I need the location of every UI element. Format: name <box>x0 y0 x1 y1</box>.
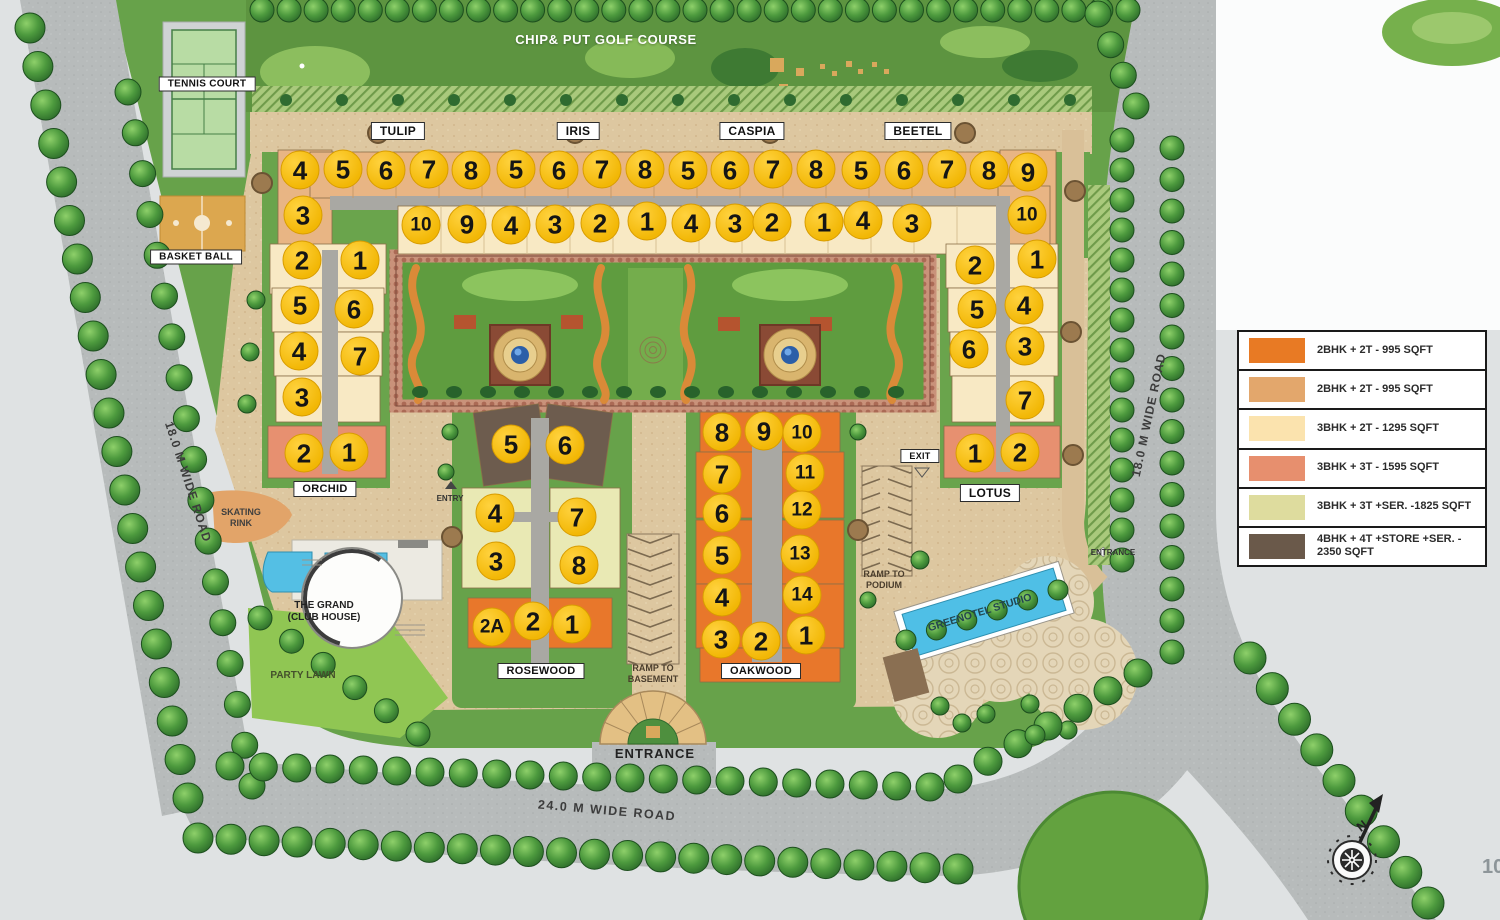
tower-badge-rosewood-4: 4 <box>476 494 515 533</box>
central-garden <box>396 256 930 406</box>
ramp-to-basement <box>627 534 679 664</box>
tower-badge-orchid-3: 3 <box>283 378 322 417</box>
area-label-exit: EXIT <box>900 449 939 463</box>
tower-badge-lotus-7: 7 <box>1006 381 1045 420</box>
legend-label: 2BHK + 2T - 995 SQFT <box>1317 383 1439 397</box>
legend-row: 2BHK + 2T - 995 SQFT <box>1239 371 1485 410</box>
ramp-basement-label: RAMP TO BASEMENT <box>628 663 679 685</box>
tower-badge-oakwood-8: 8 <box>703 413 742 452</box>
area-label-tulip: TULIP <box>371 122 425 140</box>
tower-badge-rosewood-2: 2 <box>514 602 553 641</box>
legend-swatch <box>1249 456 1305 481</box>
tower-badge-second_row-1: 1 <box>628 202 667 241</box>
tower-badge-top_row-8: 8 <box>626 150 665 189</box>
tower-badge-oakwood-5: 5 <box>703 536 742 575</box>
tower-badge-oakwood-9: 9 <box>745 412 784 451</box>
tower-badge-lotus-1: 1 <box>1018 240 1057 279</box>
tower-badge-second_row-2: 2 <box>581 204 620 243</box>
tower-badge-oakwood-2: 2 <box>742 622 781 661</box>
legend-label: 3BHK + 3T - 1595 SQFT <box>1317 461 1445 475</box>
tower-badge-second_row-4: 4 <box>844 201 883 240</box>
tower-badge-oakwood-3: 3 <box>702 620 741 659</box>
ramp-podium-label: RAMP TO PODIUM <box>863 569 904 591</box>
tower-badge-lotus-2: 2 <box>1001 433 1040 472</box>
legend-swatch <box>1249 416 1305 441</box>
ramp-to-podium <box>862 466 912 576</box>
tower-badge-top_row-6: 6 <box>367 151 406 190</box>
tower-badge-top_row-7: 7 <box>754 150 793 189</box>
tower-badge-oakwood-13: 13 <box>781 535 820 574</box>
tower-badge-top_row-5: 5 <box>842 151 881 190</box>
club-house-label: THE GRAND (CLUB HOUSE) <box>288 600 361 624</box>
tower-badge-top_row-5: 5 <box>497 150 536 189</box>
site-plan-canvas: TULIPIRISCASPIABEETELTENNIS COURTBASKET … <box>0 0 1500 920</box>
tower-badge-rosewood-8: 8 <box>560 546 599 585</box>
tower-badge-second_row-9: 9 <box>448 205 487 244</box>
bush-row <box>280 94 1076 106</box>
tower-badge-top_row-7: 7 <box>583 150 622 189</box>
tower-badge-top_row-6: 6 <box>540 151 579 190</box>
tower-badge-second_row-4: 4 <box>672 204 711 243</box>
area-label-beetel: BEETEL <box>884 122 951 140</box>
legend-swatch <box>1249 377 1305 402</box>
legend-label: 3BHK + 3T +SER. -1825 SQFT <box>1317 500 1477 514</box>
legend-row: 4BHK + 4T +STORE +SER. - 2350 SQFT <box>1239 528 1485 565</box>
legend-label: 4BHK + 4T +STORE +SER. - 2350 SQFT <box>1317 533 1485 561</box>
area-label-rosewood: ROSEWOOD <box>497 663 584 679</box>
east-hedge <box>1088 185 1110 565</box>
tower-badge-oakwood-4: 4 <box>703 578 742 617</box>
tower-badge-orchid-1: 1 <box>330 433 369 472</box>
tower-badge-top_row-7: 7 <box>928 150 967 189</box>
entrance-main-label: ENTRANCE <box>615 746 695 762</box>
tower-badge-orchid-2: 2 <box>283 241 322 280</box>
area-label-orchid: ORCHID <box>293 481 356 497</box>
tower-badge-lotus-2: 2 <box>956 246 995 285</box>
tower-badge-lotus-6: 6 <box>950 330 989 369</box>
tower-badge-lotus-3: 3 <box>1006 327 1045 366</box>
fountain <box>490 325 550 385</box>
entrance-side-label: ENTRANCE <box>1091 548 1135 558</box>
tower-badge-rosewood-2a: 2A <box>473 608 512 647</box>
tower-badge-oakwood-1: 1 <box>787 616 826 655</box>
tower-badge-second_row-10: 10 <box>402 206 441 245</box>
tower-badge-orchid-7: 7 <box>341 337 380 376</box>
skating-rink-label: SKATING RINK <box>221 507 261 529</box>
tower-badge-lotus-1: 1 <box>956 434 995 473</box>
tower-badge-rosewood-7: 7 <box>558 498 597 537</box>
tower-badge-top_row-4: 4 <box>281 151 320 190</box>
tower-badge-second_row-4: 4 <box>492 206 531 245</box>
tower-badge-oakwood-7: 7 <box>703 455 742 494</box>
tower-badge-second_row-3: 3 <box>716 204 755 243</box>
tower-badge-second_row-3: 3 <box>536 205 575 244</box>
area-label-basket-ball: BASKET BALL <box>150 250 242 265</box>
legend-row: 3BHK + 3T +SER. -1825 SQFT <box>1239 489 1485 528</box>
tower-badge-top_row-6: 6 <box>711 151 750 190</box>
tower-badge-rosewood-3: 3 <box>477 542 516 581</box>
area-label-caspia: CASPIA <box>719 122 784 140</box>
tower-badge-lotus-5: 5 <box>958 290 997 329</box>
tower-badge-rosewood-5: 5 <box>492 425 531 464</box>
tower-badge-oakwood-10: 10 <box>783 414 822 453</box>
tower-badge-second_row-1: 1 <box>805 203 844 242</box>
tower-badge-top_row-8: 8 <box>797 150 836 189</box>
tower-badge-orchid-5: 5 <box>281 286 320 325</box>
legend-swatch <box>1249 495 1305 520</box>
tower-badge-oakwood-11: 11 <box>786 454 825 493</box>
legend-label: 3BHK + 2T - 1295 SQFT <box>1317 422 1445 436</box>
entry-label: ENTRY <box>437 494 464 504</box>
party-lawn-label: PARTY LAWN <box>270 670 335 682</box>
hedge-strip <box>252 86 1092 116</box>
legend-row: 3BHK + 2T - 1295 SQFT <box>1239 410 1485 449</box>
tower-badge-second_row-10: 10 <box>1008 196 1047 235</box>
tower-badge-top_row-9: 9 <box>1009 153 1048 192</box>
tennis-court <box>163 22 245 177</box>
golf-course-label: CHIP& PUT GOLF COURSE <box>515 32 697 48</box>
tower-badge-rosewood-6: 6 <box>546 426 585 465</box>
legend: 2BHK + 2T - 995 SQFT 2BHK + 2T - 995 SQF… <box>1237 330 1487 567</box>
tower-badge-orchid-1: 1 <box>341 241 380 280</box>
tower-badge-second_row-3: 3 <box>284 196 323 235</box>
legend-row: 2BHK + 2T - 995 SQFT <box>1239 332 1485 371</box>
legend-label: 2BHK + 2T - 995 SQFT <box>1317 344 1439 358</box>
area-label-oakwood: OAKWOOD <box>721 663 801 679</box>
tower-badge-orchid-2: 2 <box>285 434 324 473</box>
tower-badge-lotus-4: 4 <box>1005 286 1044 325</box>
tower-badge-orchid-4: 4 <box>280 332 319 371</box>
tower-badge-oakwood-6: 6 <box>703 494 742 533</box>
tower-badge-orchid-6: 6 <box>335 290 374 329</box>
tower-badge-oakwood-12: 12 <box>783 491 822 530</box>
legend-swatch <box>1249 338 1305 363</box>
area-label-lotus: LOTUS <box>960 484 1020 502</box>
area-label-iris: IRIS <box>557 122 600 140</box>
tower-badge-top_row-5: 5 <box>324 150 363 189</box>
legend-row: 3BHK + 3T - 1595 SQFT <box>1239 450 1485 489</box>
tower-badge-top_row-5: 5 <box>669 151 708 190</box>
area-label-tennis-court: TENNIS COURT <box>159 77 256 92</box>
tower-badge-second_row-3: 3 <box>893 204 932 243</box>
legend-swatch <box>1249 534 1305 559</box>
fountain <box>760 325 820 385</box>
tower-badge-second_row-2: 2 <box>753 203 792 242</box>
tower-badge-top_row-8: 8 <box>970 151 1009 190</box>
tower-badge-oakwood-14: 14 <box>783 576 822 615</box>
basketball-court <box>160 196 245 251</box>
tower-badge-top_row-8: 8 <box>452 151 491 190</box>
tower-badge-rosewood-1: 1 <box>553 605 592 644</box>
tower-badge-top_row-6: 6 <box>885 151 924 190</box>
edge-page-number: 10 <box>1482 855 1500 879</box>
tower-badge-top_row-7: 7 <box>410 150 449 189</box>
